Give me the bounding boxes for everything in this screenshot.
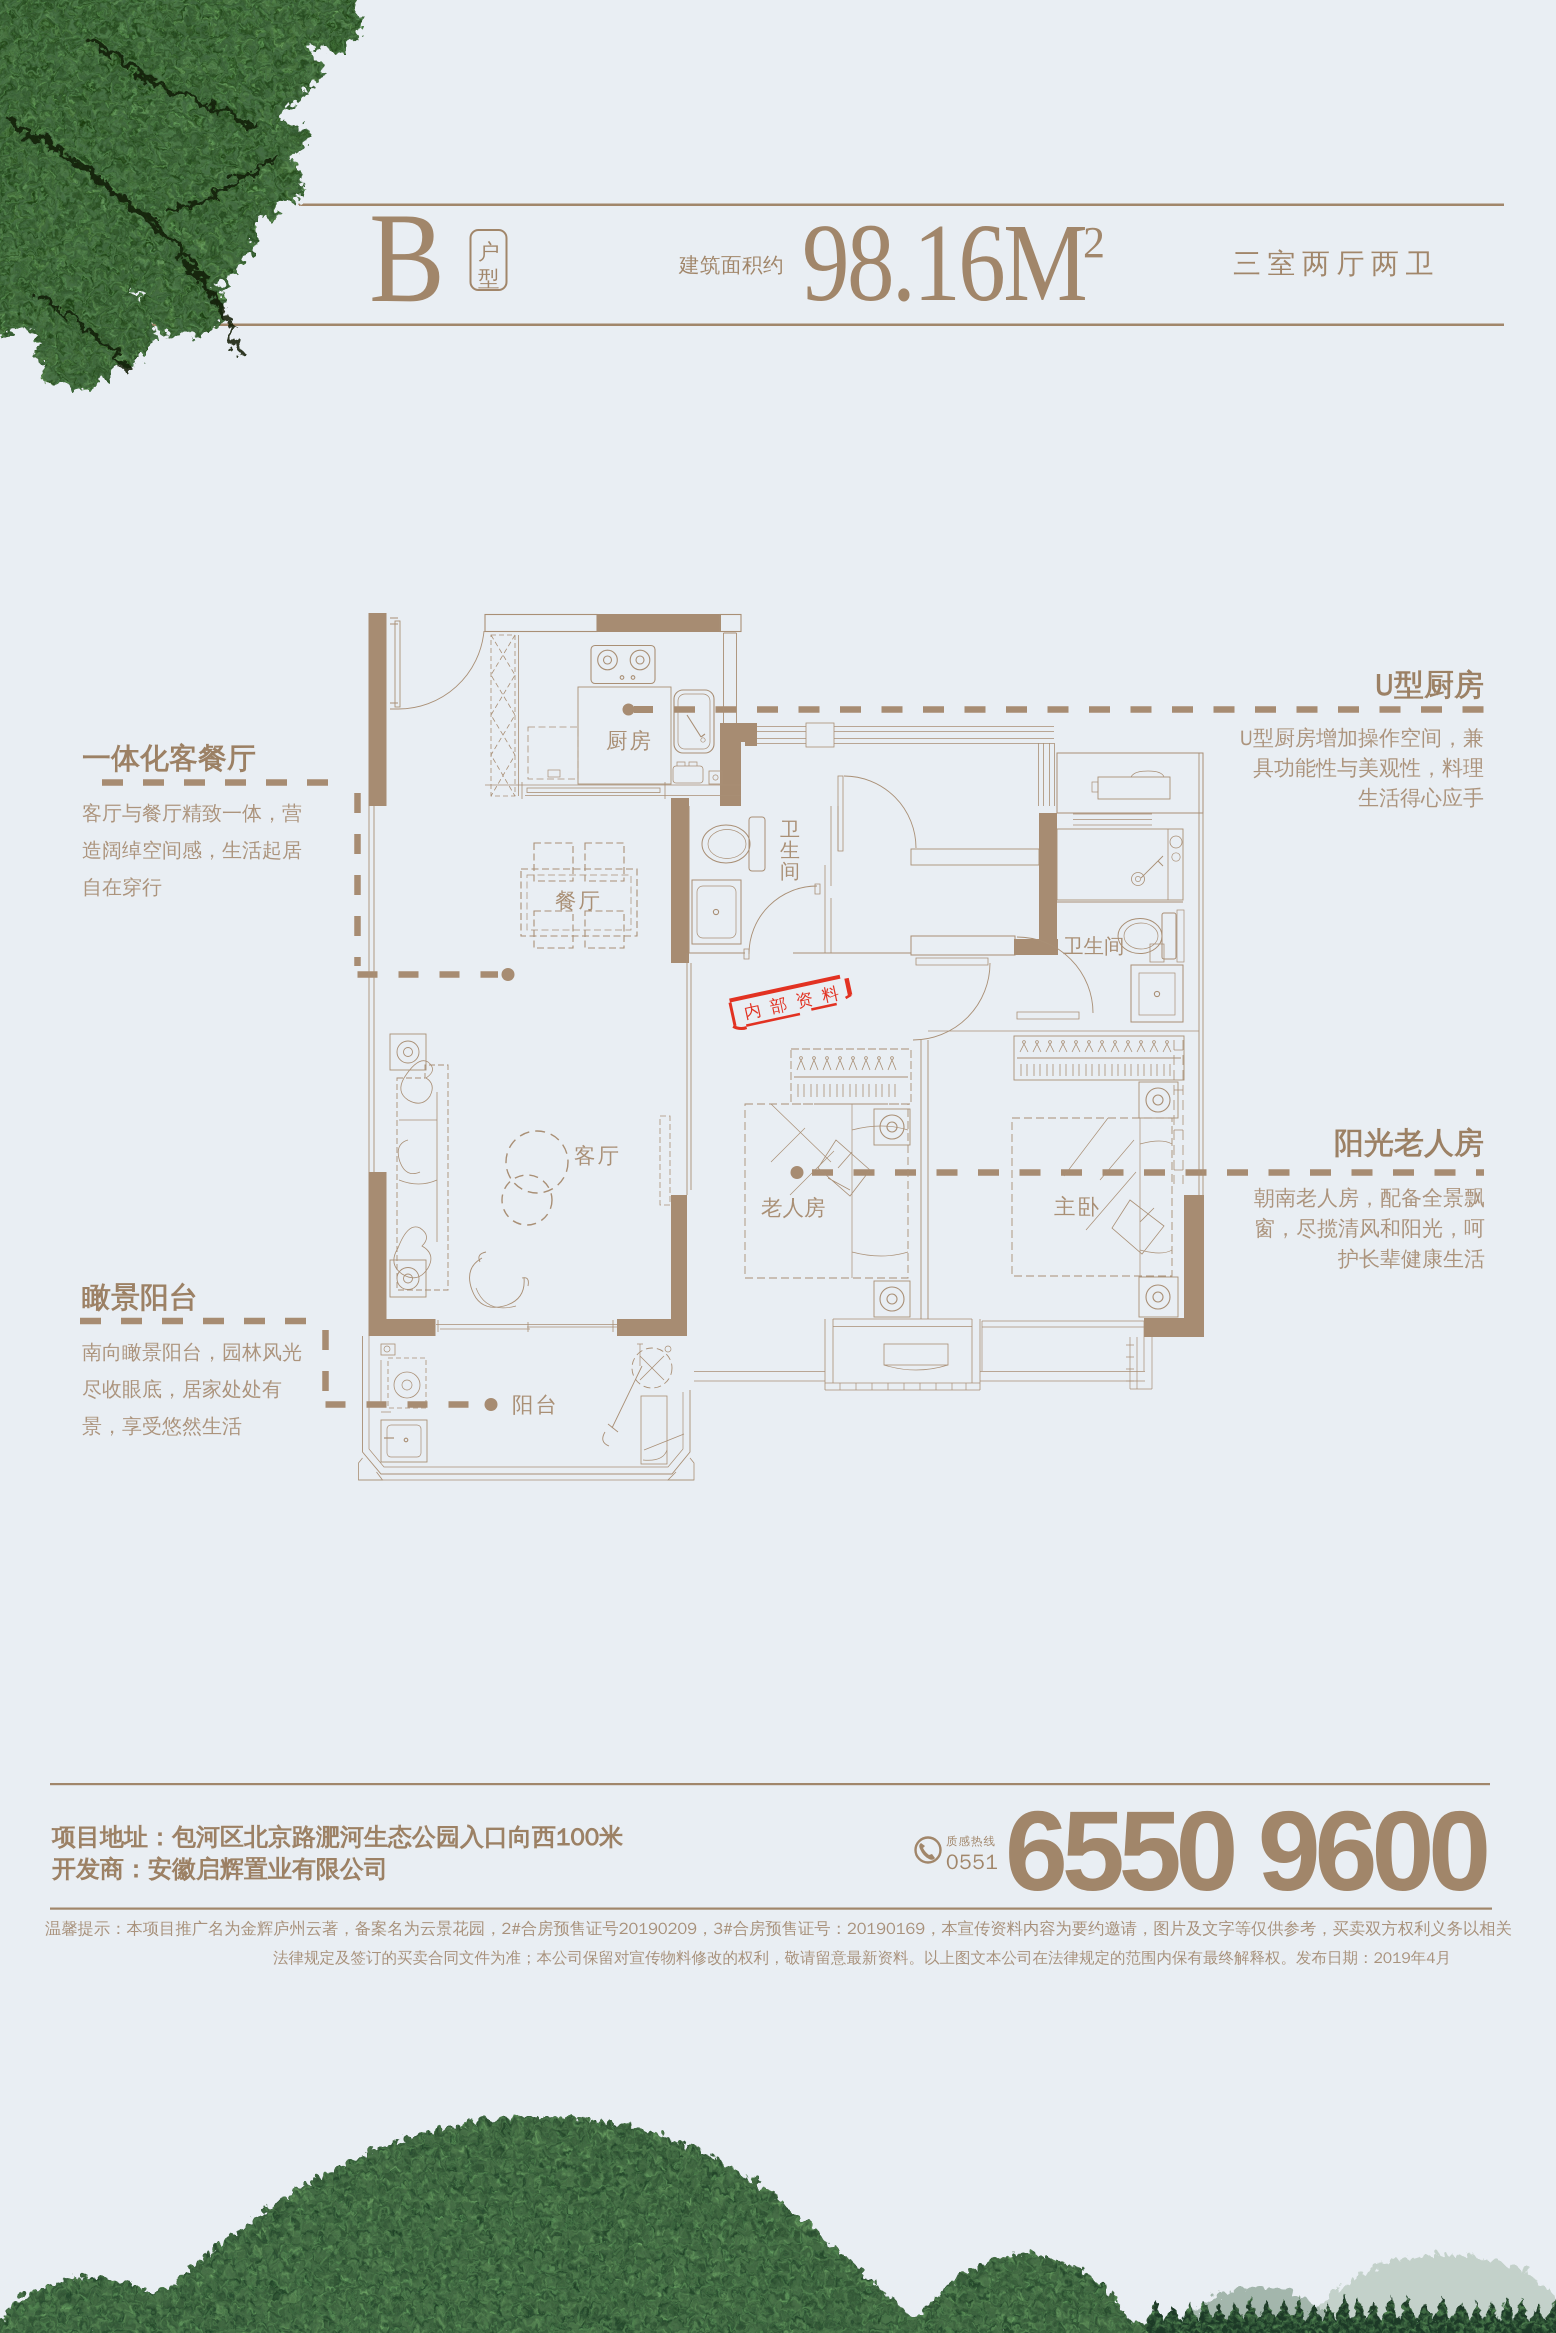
svg-text:6550 9600: 6550 9600	[1005, 1788, 1487, 1914]
svg-text:98.16M: 98.16M	[802, 202, 1085, 325]
svg-text:2: 2	[1083, 218, 1105, 267]
svg-text:B: B	[369, 187, 445, 329]
